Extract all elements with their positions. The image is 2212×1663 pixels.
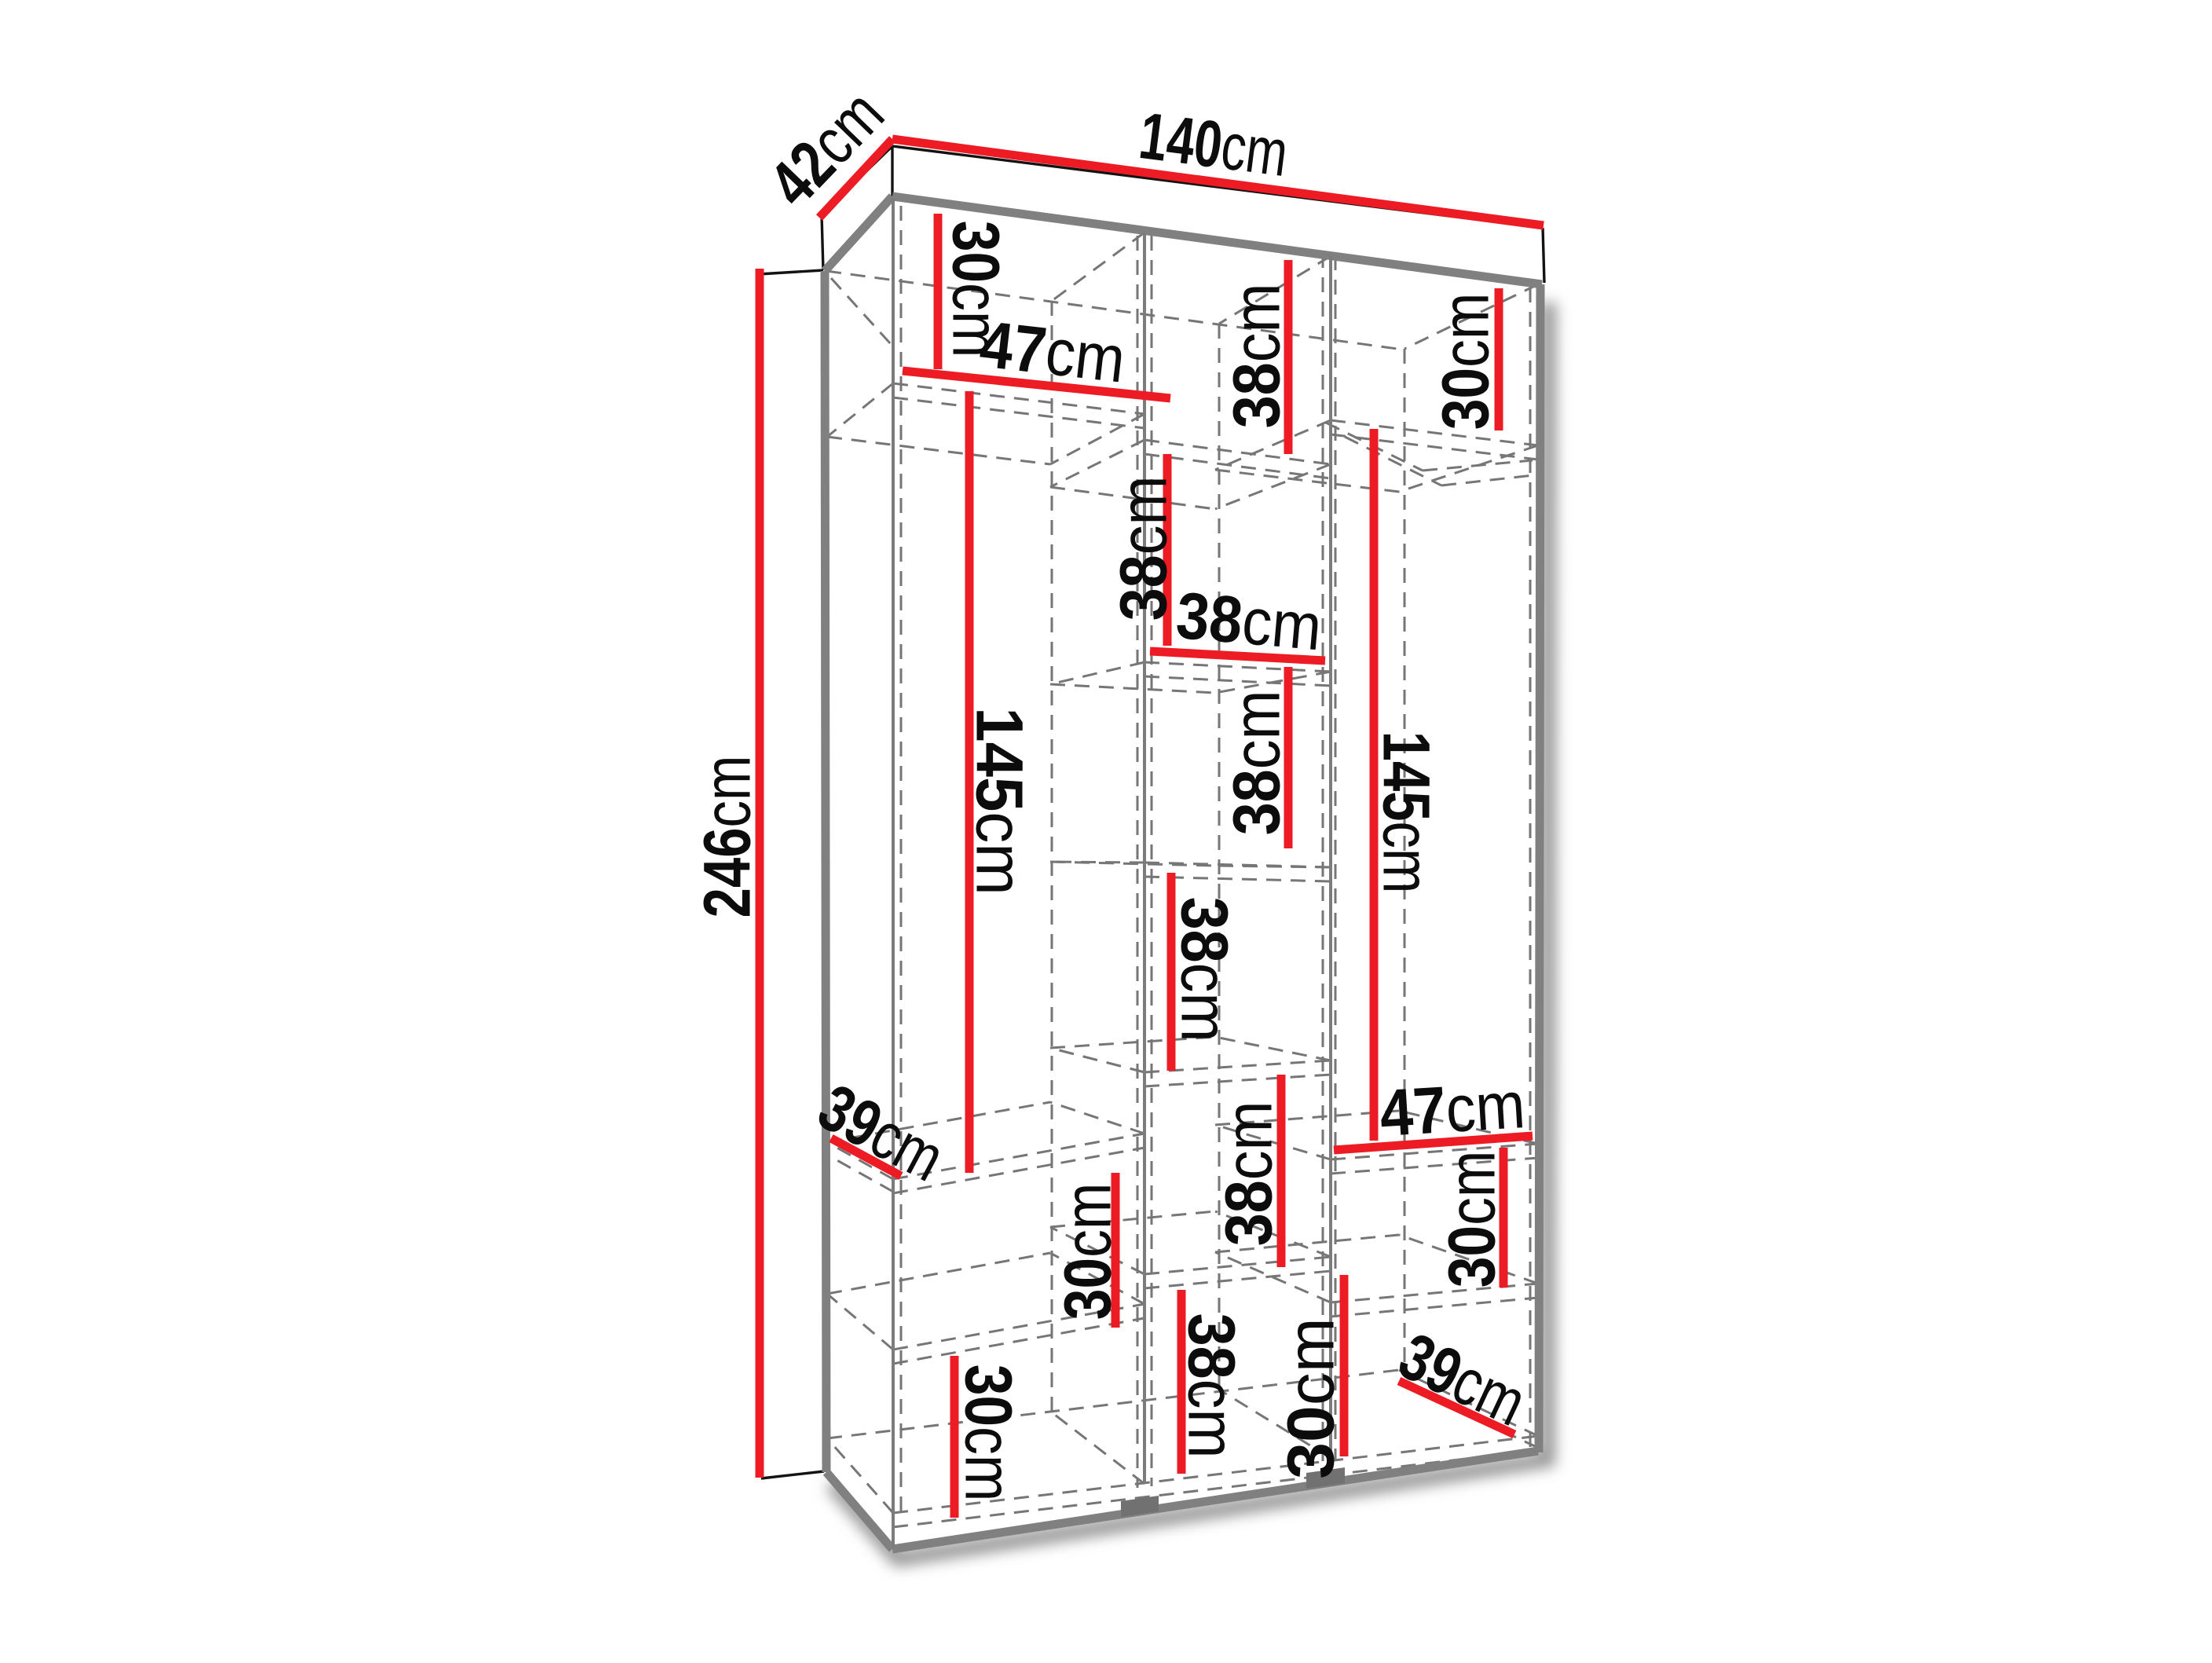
- svg-text:38cm: 38cm: [1175, 1313, 1249, 1459]
- svg-text:145cm: 145cm: [1369, 731, 1443, 894]
- svg-text:246cm: 246cm: [690, 756, 764, 918]
- svg-text:30cm: 30cm: [1050, 1183, 1125, 1321]
- svg-text:145cm: 145cm: [962, 707, 1035, 895]
- svg-text:30cm: 30cm: [951, 1364, 1026, 1502]
- svg-text:38cm: 38cm: [1168, 897, 1242, 1042]
- svg-text:38cm: 38cm: [1220, 284, 1294, 429]
- svg-text:38cm: 38cm: [1174, 578, 1324, 664]
- svg-text:38cm: 38cm: [1220, 690, 1294, 836]
- svg-text:30cm: 30cm: [1274, 1317, 1348, 1478]
- svg-text:30cm: 30cm: [1428, 293, 1503, 430]
- svg-text:38cm: 38cm: [1212, 1101, 1286, 1247]
- svg-text:38cm: 38cm: [1107, 476, 1181, 621]
- svg-text:30cm: 30cm: [1434, 1151, 1509, 1288]
- svg-text:47cm: 47cm: [1378, 1068, 1527, 1150]
